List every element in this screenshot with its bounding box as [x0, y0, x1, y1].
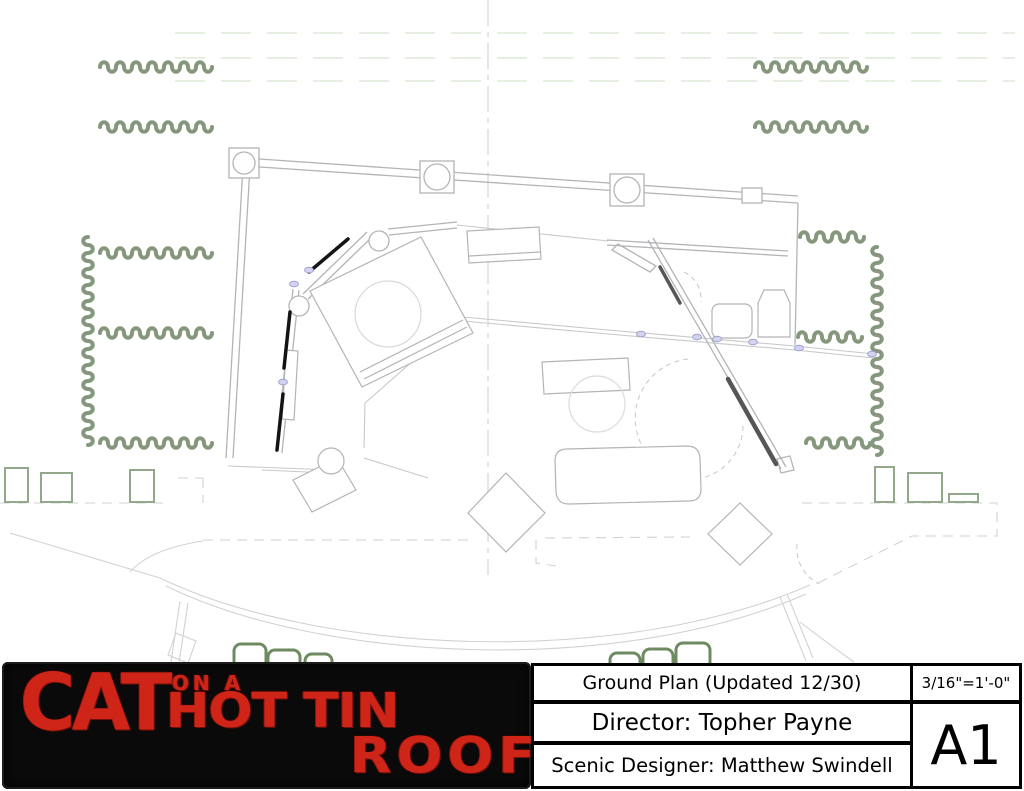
stool	[318, 448, 344, 474]
logo-word-cat: CAT	[20, 670, 169, 736]
ground-plan-sheet: Ground Plan (Updated 12/30) Director: To…	[0, 0, 1024, 791]
drawing-scale: 3/16"=1'-0"	[913, 666, 1019, 704]
logo-word-hot-tin: HOT TIN	[166, 691, 399, 732]
director-credit: Director: Topher Payne	[534, 704, 910, 745]
chair-diamond-right	[708, 503, 772, 565]
designer-credit: Scenic Designer: Matthew Swindell	[534, 745, 910, 786]
title-block-center: Ground Plan (Updated 12/30) Director: To…	[531, 663, 913, 789]
title-block-right: 3/16"=1'-0" A1	[910, 663, 1022, 789]
chair-diamond-left	[468, 473, 545, 552]
logo-word-roof: ROOF	[350, 735, 531, 777]
spike-lines-dashed	[175, 33, 1015, 81]
sofa	[555, 446, 701, 504]
dresser	[467, 227, 541, 263]
wing-chair	[758, 290, 790, 337]
drawing-title: Ground Plan (Updated 12/30)	[534, 666, 910, 704]
armchair	[712, 304, 752, 338]
show-logo: CAT ON A HOT TIN ROOF	[2, 662, 531, 789]
platform-edges	[228, 225, 874, 478]
sheet-number: A1	[913, 704, 1019, 786]
table	[542, 358, 630, 394]
bed	[310, 237, 473, 387]
